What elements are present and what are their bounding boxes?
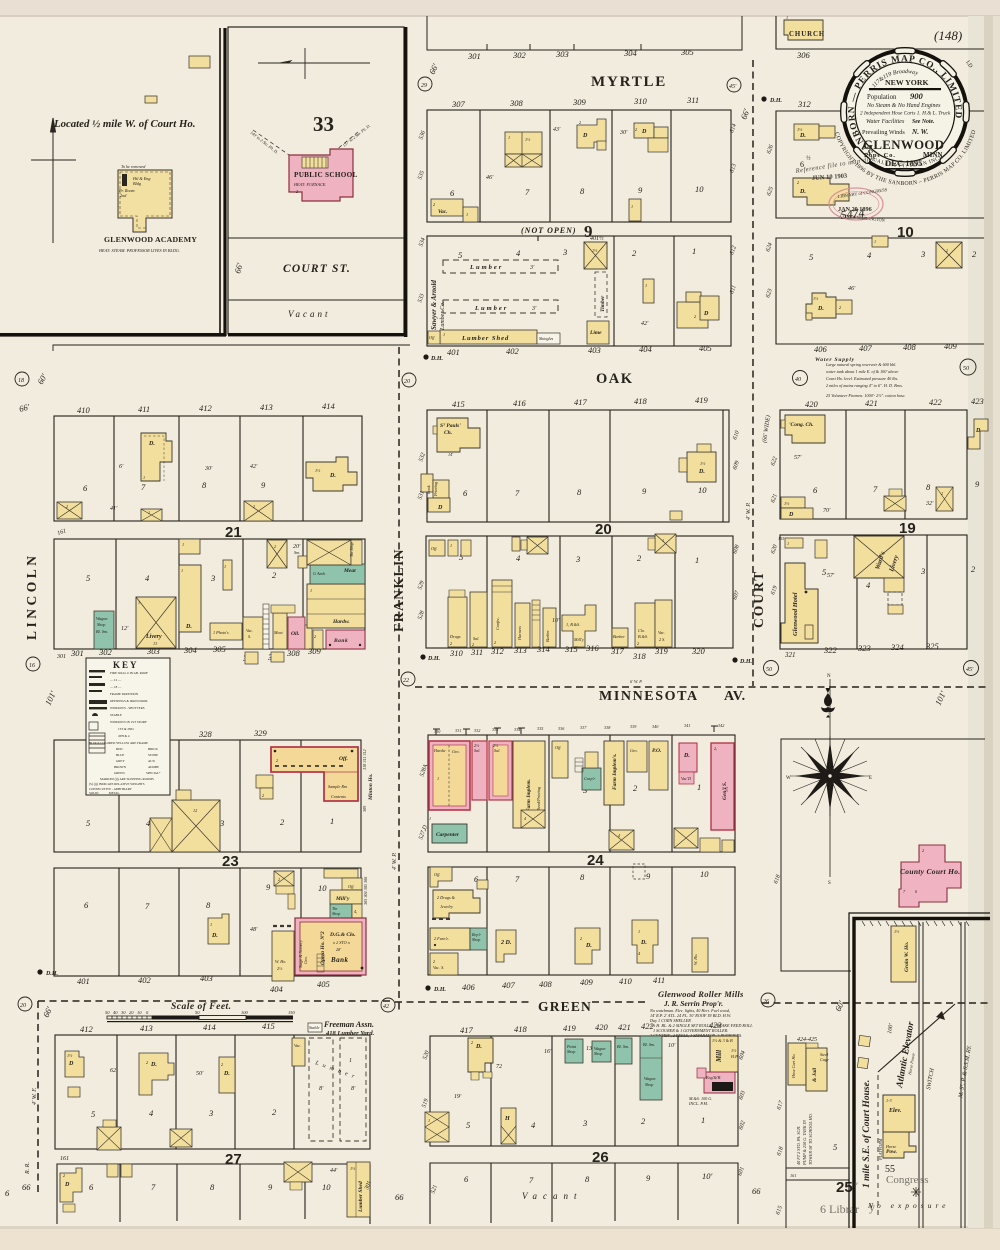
svg-text:5: 5 — [833, 1142, 837, 1152]
svg-text:2: 2 — [276, 758, 278, 763]
svg-text:E: E — [869, 776, 872, 781]
svg-text:2: 2 — [274, 544, 276, 549]
svg-text:Pow.: Pow. — [886, 1149, 897, 1155]
svg-text:D.: D. — [475, 1044, 482, 1050]
svg-text:W. Ho.: W. Ho. — [693, 954, 698, 965]
svg-text:D.: D. — [223, 1071, 230, 1077]
svg-text:2: 2 — [637, 641, 639, 646]
svg-text:312: 312 — [490, 646, 505, 656]
svg-text:45': 45' — [729, 83, 737, 90]
svg-text:33: 33 — [313, 112, 334, 136]
svg-text:Seed/Printing: Seed/Printing — [536, 787, 541, 810]
svg-text:4' W. P.: 4' W. P. — [391, 852, 398, 870]
svg-text:10: 10 — [137, 1010, 142, 1015]
svg-text:S.: S. — [248, 634, 251, 639]
svg-text:30': 30' — [204, 466, 213, 472]
svg-text:46': 46' — [848, 285, 856, 292]
svg-text:Contents: Contents — [331, 794, 346, 799]
svg-text:2: 2 — [296, 189, 298, 194]
svg-text:320: 320 — [691, 646, 706, 656]
svg-text:D: D — [641, 129, 647, 135]
svg-text:2: 2 — [494, 640, 496, 645]
svg-text:20: 20 — [20, 1003, 26, 1009]
svg-text:44': 44' — [330, 1167, 338, 1174]
svg-text:Stable: Stable — [309, 1025, 320, 1030]
svg-text:BROWN: BROWN — [114, 765, 127, 769]
svg-text:29: 29 — [421, 83, 427, 89]
svg-text:COURT: COURT — [751, 570, 766, 628]
svg-text:2 Drugs &: 2 Drugs & — [437, 895, 456, 900]
svg-text:Bldg: Bldg — [133, 181, 141, 186]
svg-text:2: 2 — [941, 491, 943, 496]
svg-text:336: 336 — [558, 726, 565, 731]
svg-text:Vac.: Vac. — [246, 628, 253, 633]
svg-text:W: W — [786, 776, 791, 781]
svg-text:404: 404 — [639, 344, 653, 354]
svg-text:403: 403 — [588, 345, 601, 355]
svg-text:32': 32' — [925, 501, 934, 507]
svg-text:2: 2 — [946, 248, 948, 253]
svg-text:1: 1 — [450, 543, 452, 548]
svg-text:1: 1 — [310, 588, 312, 593]
svg-text:Printing: Printing — [433, 482, 438, 497]
svg-text:43': 43' — [553, 126, 561, 133]
svg-text:2: 2 — [146, 1060, 148, 1065]
svg-text:1: 1 — [638, 929, 640, 934]
svg-text:Lumber Shed: Lumber Shed — [358, 1181, 364, 1213]
svg-text:1: 1 — [330, 816, 334, 826]
svg-text:D.: D. — [817, 306, 824, 312]
svg-text:1: 1 — [443, 332, 445, 337]
svg-text:1½: 1½ — [813, 296, 819, 301]
svg-text:(S) ()() INDICATE RELATIVE WEI: (S) ()() INDICATE RELATIVE WEIGHTS — [89, 782, 145, 786]
svg-text:408: 408 — [539, 979, 553, 989]
svg-text:413: 413 — [140, 1023, 153, 1033]
svg-text:6 Librar: 6 Librar — [820, 1202, 859, 1216]
svg-text:4' W. P.: 4' W. P. — [745, 502, 752, 520]
svg-text:312: 312 — [797, 99, 812, 109]
svg-text:301: 301 — [467, 51, 481, 61]
svg-text:1½: 1½ — [724, 786, 729, 792]
svg-text:D.: D. — [640, 940, 647, 946]
svg-text:406: 406 — [814, 344, 828, 354]
svg-text:ADOBE: ADOBE — [148, 765, 159, 769]
svg-text:1: 1 — [349, 1058, 352, 1064]
svg-text:418 Lumber Yard.: 418 Lumber Yard. — [325, 1030, 375, 1037]
svg-text:1: 1 — [428, 1118, 430, 1123]
svg-text:161: 161 — [790, 1173, 796, 1178]
svg-text:4TH & 4: 4TH & 4 — [118, 734, 130, 738]
svg-text:418: 418 — [514, 1024, 528, 1034]
svg-text:Off.: Off. — [348, 884, 354, 889]
svg-text:308: 308 — [509, 98, 524, 108]
svg-text:D.H.: D.H. — [45, 971, 59, 977]
svg-text:D.: D. — [185, 624, 192, 630]
svg-text:GREEN: GREEN — [538, 999, 592, 1014]
svg-text:KEY: KEY — [113, 660, 139, 670]
svg-text:317: 317 — [610, 646, 625, 656]
svg-text:45': 45' — [966, 666, 974, 673]
svg-text:316: 316 — [585, 643, 600, 653]
svg-text:3: 3 — [582, 1118, 587, 1128]
svg-text:Clo.: Clo. — [638, 628, 645, 633]
svg-text:1: 1 — [631, 204, 633, 209]
svg-text:2: 2 — [580, 936, 582, 941]
svg-text:1½ & 3 & B: 1½ & 3 & B — [712, 1038, 733, 1043]
svg-text:10': 10' — [552, 618, 560, 624]
svg-text:Located ½ mile W. of Court Ho.: Located ½ mile W. of Court Ho. — [53, 118, 195, 130]
svg-text:D: D — [582, 133, 588, 139]
svg-text:50: 50 — [766, 667, 772, 673]
svg-text:1½: 1½ — [700, 461, 706, 466]
svg-text:D.H.: D.H. — [769, 98, 783, 104]
svg-text:2nd: 2nd — [120, 193, 127, 198]
svg-text:NEW YORK: NEW YORK — [885, 78, 929, 87]
svg-text:42: 42 — [383, 1003, 389, 1010]
svg-text:P.O.: P.O. — [652, 748, 661, 754]
svg-text:D: D — [64, 1182, 70, 1188]
svg-text:309: 309 — [307, 646, 322, 656]
svg-text:Glenwood Hotel: Glenwood Hotel — [792, 592, 799, 636]
svg-text:Sal.: Sal. — [474, 748, 480, 753]
svg-text:D.: D. — [683, 753, 690, 759]
svg-text:421: 421 — [865, 398, 878, 408]
svg-text:1 mile S.E. of Court House.: 1 mile S.E. of Court House. — [862, 1080, 872, 1188]
svg-text:Hardw.: Hardw. — [332, 619, 350, 625]
svg-text:2 miles of mains ranging 4" to: 2 miles of mains ranging 4" to 6". H. D.… — [826, 383, 903, 388]
svg-text:Oil.: Oil. — [291, 631, 299, 637]
svg-text:423: 423 — [971, 396, 984, 406]
svg-text:MINNESOTA: MINNESOTA — [599, 689, 699, 704]
svg-text:2: 2 — [797, 180, 799, 185]
svg-text:G Amb.: G Amb. — [313, 571, 326, 576]
svg-text:AUX: AUX — [148, 759, 156, 763]
svg-text:MYRTLE: MYRTLE — [591, 74, 667, 90]
svg-text:401½: 401½ — [590, 235, 604, 242]
svg-text:No exposure: No exposure — [867, 1201, 949, 1210]
svg-text:309: 309 — [362, 805, 367, 812]
svg-text:Bl. Sm.: Bl. Sm. — [96, 629, 108, 634]
svg-text:46': 46' — [486, 174, 494, 181]
svg-text:TOWER 50' TO SCHOOL HO.: TOWER 50' TO SCHOOL HO. — [808, 1113, 813, 1165]
svg-text:335: 335 — [537, 726, 543, 731]
svg-text:40: 40 — [795, 376, 801, 383]
svg-text:HEAT: FURNACE.: HEAT: FURNACE. — [293, 182, 326, 187]
svg-text:2: 2 — [253, 504, 255, 509]
svg-text:Court Ho. level. Estimated pre: Court Ho. level. Estimated pressure 40 l… — [826, 376, 898, 381]
svg-text:Barber: Barber — [613, 634, 625, 639]
svg-text:420: 420 — [595, 1022, 609, 1032]
svg-text:Shingles: Shingles — [539, 336, 554, 341]
svg-text:Vac.: Vac. — [294, 1043, 301, 1048]
svg-text:2: 2 — [450, 641, 452, 646]
svg-text:2½: 2½ — [474, 743, 480, 748]
svg-text:30': 30' — [619, 130, 628, 136]
svg-text:341: 341 — [684, 723, 690, 728]
svg-text:Carpenter: Carpenter — [436, 832, 460, 838]
svg-text:307: 307 — [451, 99, 466, 109]
svg-text:Mill'y: Mill'y — [573, 637, 584, 642]
svg-text:No Steam & No Hand Engines: No Steam & No Hand Engines — [866, 103, 941, 109]
svg-text:40 FT 2 STO. PA. SCH.: 40 FT 2 STO. PA. SCH. — [796, 1126, 801, 1165]
svg-text:415: 415 — [452, 399, 465, 409]
svg-text:5: 5 — [822, 567, 826, 577]
svg-text:330: 330 — [434, 729, 441, 734]
svg-text:302: 302 — [98, 647, 113, 657]
svg-text:66: 66 — [22, 1182, 31, 1192]
svg-text:1: 1 — [224, 564, 226, 569]
svg-text:332: 332 — [474, 728, 480, 733]
svg-text:6': 6' — [119, 464, 124, 470]
svg-text:WINDOWS IN 1ST STORY: WINDOWS IN 1ST STORY — [110, 720, 148, 724]
svg-text:303 304 305 306: 303 304 305 306 — [363, 876, 368, 905]
svg-text:57': 57' — [827, 573, 835, 579]
svg-text:AV.: AV. — [724, 689, 746, 704]
svg-text:155: 155 — [778, 536, 784, 541]
svg-text:325: 325 — [925, 641, 939, 651]
svg-text:161: 161 — [60, 1156, 69, 1162]
svg-text:Vac.: Vac. — [658, 630, 665, 635]
svg-text:BLUE: BLUE — [116, 753, 124, 757]
svg-text:1½: 1½ — [350, 1166, 356, 1171]
svg-text:Opera Ho. Nº2: Opera Ho. Nº2 — [320, 931, 326, 965]
svg-text:1: 1 — [210, 922, 212, 927]
svg-text:418: 418 — [634, 396, 648, 406]
svg-text:402: 402 — [138, 975, 152, 985]
svg-text:419: 419 — [563, 1023, 577, 1033]
svg-text:1: 1 — [662, 538, 664, 543]
svg-text:4: 4 — [524, 816, 526, 821]
svg-text:FIRE WALL 6 IN AB. ROOF: FIRE WALL 6 IN AB. ROOF — [110, 671, 148, 675]
svg-text:40: 40 — [113, 1010, 118, 1015]
svg-text:GLENWOOD ACADEMY: GLENWOOD ACADEMY — [104, 235, 197, 244]
svg-text:Cage: Cage — [820, 1057, 829, 1062]
svg-text:422: 422 — [929, 397, 943, 407]
svg-text:324: 324 — [890, 642, 905, 652]
svg-text:GREEN: GREEN — [114, 771, 125, 775]
svg-text:2: 2 — [471, 1040, 473, 1045]
svg-text:Wagon: Wagon — [644, 1076, 655, 1081]
svg-text:12: 12 — [193, 808, 197, 813]
svg-text:414: 414 — [322, 401, 336, 411]
svg-text:Water Facilities: Water Facilities — [866, 119, 905, 125]
svg-text:22: 22 — [403, 678, 409, 684]
svg-text:417: 417 — [574, 397, 588, 407]
svg-text:310: 310 — [449, 648, 464, 658]
svg-text:19': 19' — [454, 1094, 462, 1100]
svg-text:— 12 —: — 12 — — [109, 678, 122, 682]
svg-text:RED: RED — [116, 747, 123, 751]
svg-text:Book: Book — [426, 485, 431, 494]
svg-text:2 S.: 2 S. — [659, 637, 665, 642]
svg-text:1½: 1½ — [592, 248, 598, 253]
svg-text:403: 403 — [200, 973, 213, 983]
svg-text:414: 414 — [203, 1022, 217, 1032]
svg-text:— 18 —: — 18 — — [109, 685, 122, 689]
svg-text:150: 150 — [288, 1010, 296, 1015]
svg-text:41': 41' — [110, 505, 118, 512]
svg-text:4: 4 — [618, 833, 620, 838]
svg-text:BRICK: BRICK — [148, 747, 158, 751]
svg-text:2 Independent Hose Carts 1. H: 2 Independent Hose Carts 1. H.& L. Truck — [860, 111, 951, 117]
svg-text:5: 5 — [86, 818, 90, 828]
svg-text:62': 62' — [110, 1068, 118, 1074]
svg-text:PUMP & 250 G. TANK IN: PUMP & 250 G. TANK IN — [802, 1120, 807, 1166]
svg-text:319: 319 — [654, 646, 669, 656]
svg-text:301: 301 — [56, 654, 66, 660]
svg-text:423: 423 — [709, 1020, 722, 1030]
svg-text:Harness: Harness — [517, 626, 522, 641]
svg-text:HEAT: STEAM. PROFESSOR LIVES I: HEAT: STEAM. PROFESSOR LIVES IN BLDG. — [98, 248, 180, 253]
svg-text:Shop: Shop — [332, 911, 340, 916]
svg-text:66: 66 — [395, 1192, 404, 1202]
svg-text:Sawyer & Arnold: Sawyer & Arnold — [430, 280, 438, 330]
svg-text:402: 402 — [506, 346, 520, 356]
svg-text:25: 25 — [836, 1179, 853, 1196]
svg-text:1 Photo's: 1 Photo's — [213, 630, 229, 635]
svg-text:D: D — [68, 1061, 74, 1067]
svg-text:305: 305 — [680, 47, 694, 57]
svg-text:1: 1 — [143, 475, 145, 480]
svg-text:Stage & Scenery: Stage & Scenery — [298, 940, 303, 968]
svg-text:(NOT OPEN): (NOT OPEN) — [521, 226, 577, 235]
svg-text:'Cong. Ch.: 'Cong. Ch. — [789, 422, 814, 428]
svg-text:D: D — [437, 505, 443, 511]
svg-text:Congre: Congre — [886, 1174, 919, 1186]
svg-text:Vacant: Vacant — [522, 1191, 583, 1201]
svg-text:1: 1 — [466, 212, 468, 217]
svg-text:Minton Ho.: Minton Ho. — [368, 773, 374, 801]
svg-text:409: 409 — [944, 341, 958, 351]
svg-text:408: 408 — [903, 342, 917, 352]
svg-text:100: 100 — [241, 1010, 249, 1015]
svg-text:72: 72 — [496, 1064, 502, 1070]
svg-text:Large natural spring reservoir: Large natural spring reservoir & 600 bbl… — [825, 362, 896, 367]
svg-text:D.: D. — [698, 469, 705, 475]
svg-text:Grain W. Ho.: Grain W. Ho. — [904, 942, 910, 972]
svg-text:Scale of Feet.: Scale of Feet. — [171, 1002, 232, 1012]
svg-text:1: 1 — [645, 283, 647, 288]
svg-text:Eng'&'B: Eng'&'B — [705, 1075, 721, 1080]
svg-text:1: 1 — [701, 1115, 705, 1125]
svg-text:328: 328 — [198, 729, 213, 739]
svg-text:1: 1 — [697, 782, 701, 792]
svg-text:900: 900 — [910, 91, 924, 101]
svg-text:Bank: Bank — [330, 956, 349, 964]
svg-text:Vac. S.: Vac. S. — [433, 965, 444, 970]
svg-text:4' W. F.: 4' W. F. — [31, 1087, 38, 1105]
svg-text:D.: D. — [150, 1062, 157, 1068]
svg-text:Off.: Off. — [555, 745, 561, 750]
svg-text:20: 20 — [129, 1010, 134, 1015]
svg-text:323: 323 — [857, 643, 871, 653]
svg-text:50: 50 — [963, 366, 969, 372]
svg-text:WINDOWS - SHUTTERS: WINDOWS - SHUTTERS — [110, 706, 145, 710]
svg-text:1½: 1½ — [731, 1048, 737, 1053]
svg-text:D.: D. — [799, 133, 806, 139]
svg-text:o 2 STO o: o 2 STO o — [333, 940, 350, 945]
svg-text:5: 5 — [86, 573, 90, 583]
svg-text:1: 1 — [182, 542, 184, 547]
svg-text:Meat: Meat — [343, 568, 356, 574]
svg-text:10: 10 — [695, 184, 704, 194]
svg-text:3': 3' — [529, 265, 535, 271]
svg-text:OPENINGS & IRON DOOR: OPENINGS & IRON DOOR — [110, 699, 148, 703]
svg-text:301: 301 — [70, 648, 84, 658]
svg-text:D.H.: D.H. — [430, 356, 444, 362]
svg-text:42': 42' — [250, 463, 258, 470]
svg-text:Sᵀ Pauls': Sᵀ Pauls' — [440, 423, 461, 429]
svg-text:1: 1 — [786, 15, 788, 20]
svg-text:6' W. P.: 6' W. P. — [630, 679, 642, 684]
svg-text:PUBLIC SCHOOL: PUBLIC SCHOOL — [294, 171, 358, 179]
svg-text:County Court Ho.: County Court Ho. — [900, 867, 960, 876]
svg-text:Vacant: Vacant — [288, 309, 331, 319]
svg-text:2: 2 — [66, 504, 68, 509]
svg-text:2: 2 — [839, 305, 841, 310]
svg-text:Lumber: Lumber — [469, 264, 503, 271]
svg-text:311: 311 — [470, 647, 483, 657]
svg-text:D.: D. — [211, 933, 218, 939]
svg-text:2: 2 — [922, 848, 924, 853]
svg-text:28': 28' — [336, 947, 341, 952]
svg-text:1½: 1½ — [525, 137, 531, 142]
svg-text:1-3: 1-3 — [886, 1098, 892, 1103]
svg-text:306: 306 — [796, 50, 811, 60]
svg-text:407: 407 — [859, 343, 873, 353]
svg-text:D.H.: D.H. — [433, 987, 447, 993]
svg-text:18: 18 — [18, 378, 24, 384]
svg-text:26: 26 — [763, 999, 769, 1005]
svg-text:S: S — [828, 881, 831, 886]
svg-text:Sal.: Sal. — [494, 748, 500, 753]
svg-text:66: 66 — [752, 1186, 761, 1196]
svg-text:H.P.: H.P. — [730, 1054, 738, 1059]
svg-text:412: 412 — [199, 403, 213, 413]
svg-text:Wagon: Wagon — [96, 616, 107, 621]
svg-text:2 D.: 2 D. — [500, 940, 512, 946]
svg-text:406: 406 — [462, 982, 476, 992]
svg-text:1: 1 — [695, 555, 699, 565]
svg-text:50: 50 — [195, 1010, 200, 1015]
svg-text:2: 2 — [433, 202, 435, 207]
svg-text:Population: Population — [867, 94, 897, 101]
svg-text:Sm.: Sm. — [294, 550, 300, 555]
svg-text:339: 339 — [630, 724, 637, 729]
svg-text:304: 304 — [183, 645, 198, 655]
svg-text:420: 420 — [805, 399, 819, 409]
svg-text:8': 8' — [351, 1086, 356, 1092]
svg-text:Mill'y: Mill'y — [335, 896, 350, 902]
svg-text:57': 57' — [794, 455, 802, 461]
svg-text:Gro.: Gro. — [452, 749, 460, 754]
svg-text:30: 30 — [121, 1010, 126, 1015]
svg-text:3: 3 — [575, 554, 580, 564]
svg-text:405: 405 — [699, 343, 712, 353]
svg-text:3': 3' — [531, 306, 537, 312]
svg-text:D.: D. — [585, 943, 592, 949]
svg-text:D.: D. — [799, 189, 806, 195]
svg-text:Off.: Off. — [431, 546, 437, 551]
svg-text:COURT ST.: COURT ST. — [283, 263, 351, 275]
svg-text:Jewelry: Jewelry — [440, 904, 453, 909]
svg-text:1: 1 — [692, 246, 696, 256]
svg-text:3: 3 — [920, 249, 925, 259]
svg-text:SPECIAL*: SPECIAL* — [146, 771, 161, 775]
svg-text:D.: D. — [148, 441, 155, 447]
svg-text:8': 8' — [319, 1086, 324, 1092]
svg-text:2½: 2½ — [277, 966, 283, 971]
